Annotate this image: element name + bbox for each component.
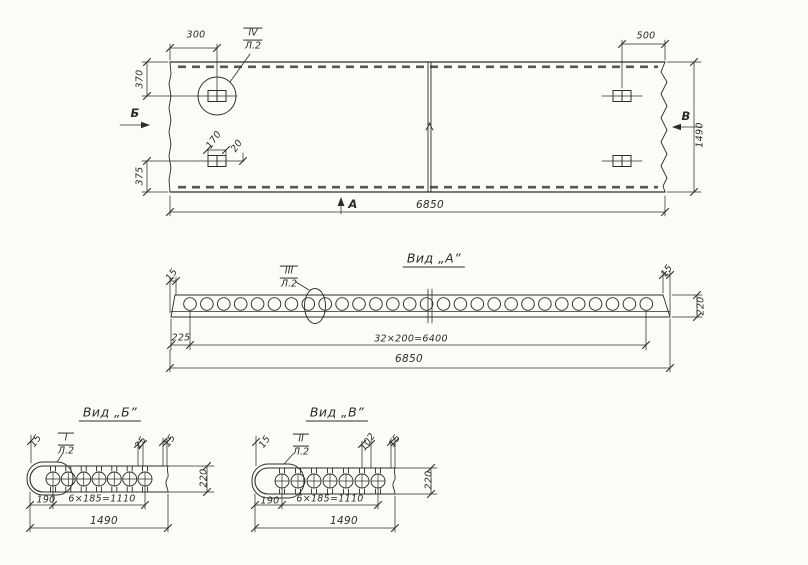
view-a-dim-220: 220	[696, 296, 707, 315]
dim-label-6850-plan: 6850	[416, 199, 444, 211]
view-a-title: Вид „А”	[403, 251, 465, 268]
dim-label-375: 375	[135, 166, 146, 185]
view-b-dim-190: 190	[36, 495, 55, 506]
drawing-linework	[0, 0, 808, 565]
view-a-dim-32x200: 32×200=6400	[374, 334, 448, 345]
view-b-linework	[27, 435, 215, 532]
view-b-title: Вид „Б”	[79, 405, 141, 422]
section-letter-a: А	[348, 197, 357, 211]
dim-label-500: 500	[636, 31, 655, 42]
callout-iv-number: IV	[243, 28, 262, 41]
view-b-dim-220: 220	[199, 468, 210, 487]
section-letter-v: В	[681, 109, 690, 123]
view-v-dim-1490: 1490	[330, 515, 358, 527]
callout-i: I Л.2	[58, 433, 74, 458]
callout-iii-sheet: Л.2	[280, 279, 298, 291]
engineering-drawing-canvas: 300 IV Л.2 500 370 Б 170 20 375 А 6850 В…	[0, 0, 808, 565]
callout-iv: IV Л.2	[243, 28, 262, 53]
callout-i-number: I	[58, 433, 74, 446]
view-v-dim-6x185: 6×185=1110	[296, 494, 363, 505]
callout-i-sheet: Л.2	[58, 446, 74, 458]
section-letter-b: Б	[130, 106, 139, 120]
callout-ii-number: II	[293, 434, 309, 447]
callout-ii-sheet: Л.2	[293, 447, 309, 459]
view-b-dim-1490: 1490	[90, 515, 118, 527]
view-v-dim-190: 190	[260, 496, 279, 507]
callout-iii-number: III	[280, 266, 298, 279]
dim-label-1490-plan: 1490	[695, 122, 706, 147]
view-a-dim-6850: 6850	[395, 353, 423, 365]
view-a-dim-225: 225	[171, 333, 190, 344]
dim-label-300: 300	[186, 30, 205, 41]
callout-iv-sheet: Л.2	[243, 41, 262, 53]
view-v-dim-220: 220	[424, 470, 435, 489]
plan-view-linework	[120, 40, 702, 216]
view-v-title: Вид „В”	[306, 405, 368, 422]
callout-iii: III Л.2	[280, 266, 298, 291]
dim-label-370: 370	[135, 69, 146, 88]
view-b-dim-6x185: 6×185=1110	[68, 494, 135, 505]
callout-ii: II Л.2	[293, 434, 309, 459]
view-a-linework	[167, 271, 703, 372]
